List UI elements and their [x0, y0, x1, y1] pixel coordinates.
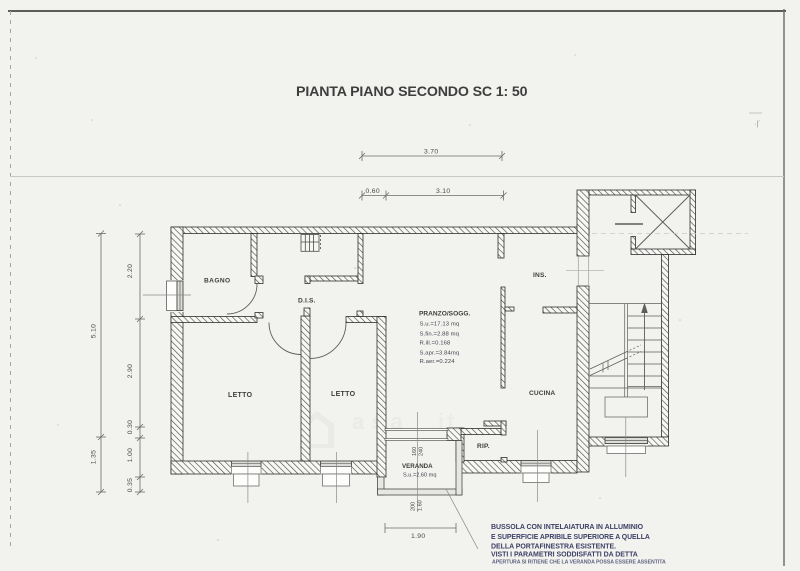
svg-text:R.ill.=0.168: R.ill.=0.168	[420, 341, 451, 347]
svg-text:S.fin.=2.88 mq: S.fin.=2.88 mq	[420, 331, 460, 337]
svg-text:2.90: 2.90	[127, 364, 134, 378]
svg-text:S.apr.=3.84mq: S.apr.=3.84mq	[420, 351, 460, 357]
svg-text:APERTURA SI RITIENE CHE LA VER: APERTURA SI RITIENE CHE LA VERANDA POSSA…	[492, 560, 666, 566]
svg-text:CUCINA: CUCINA	[529, 390, 555, 397]
svg-text:R.aer.=0.224: R.aer.=0.224	[420, 359, 456, 365]
svg-text:LETTO: LETTO	[228, 392, 253, 399]
svg-text:DELLA PORTAFINESTRA ESISTENTE.: DELLA PORTAFINESTRA ESISTENTE.	[491, 544, 616, 551]
svg-text:1.00: 1.00	[127, 448, 134, 462]
svg-text:BUSSOLA CON INTELAIATURA IN AL: BUSSOLA CON INTELAIATURA IN ALLUMINIO	[491, 524, 644, 531]
svg-text:·|´: ·|´	[754, 121, 760, 128]
svg-text:3.70: 3.70	[424, 149, 438, 156]
svg-text:S.u.=2.60 mq: S.u.=2.60 mq	[403, 473, 436, 479]
svg-text:200: 200	[411, 502, 417, 511]
svg-text:INS.: INS.	[533, 272, 547, 279]
svg-text:0.35: 0.35	[127, 478, 134, 492]
svg-text:160: 160	[412, 447, 418, 456]
svg-text:LETTO: LETTO	[331, 391, 356, 398]
svg-text:0.30: 0.30	[127, 420, 134, 434]
svg-text:1.90: 1.90	[411, 533, 425, 540]
svg-text:1.35: 1.35	[91, 450, 98, 464]
svg-text:VISTI I PARAMETRI SODDISFATTI: VISTI I PARAMETRI SODDISFATTI DA DETTA	[491, 552, 638, 559]
svg-text:D.I.S.: D.I.S.	[298, 298, 316, 305]
svg-text:E SUPERFICIE APRIBILE SUPERIOR: E SUPERFICIE APRIBILE SUPERIORE A QUELLA	[491, 534, 650, 541]
svg-text:2.20: 2.20	[127, 264, 134, 278]
svg-text:3.10: 3.10	[436, 188, 450, 195]
svg-text:PRANZO/SOGG.: PRANZO/SOGG.	[419, 311, 470, 318]
svg-text:VERANDA: VERANDA	[402, 463, 433, 470]
svg-text:5.10: 5.10	[91, 324, 98, 338]
svg-text:RIP.: RIP.	[477, 443, 490, 450]
svg-text:PIANTA PIANO SECONDO SC 1: 50: PIANTA PIANO SECONDO SC 1: 50	[296, 84, 528, 100]
svg-text:240: 240	[419, 447, 425, 456]
svg-text:BAGNO: BAGNO	[204, 278, 231, 285]
svg-text:0.60: 0.60	[366, 188, 380, 195]
svg-text:1.60: 1.60	[418, 500, 424, 511]
svg-text:S.u.=17.13 mq: S.u.=17.13 mq	[420, 321, 460, 327]
